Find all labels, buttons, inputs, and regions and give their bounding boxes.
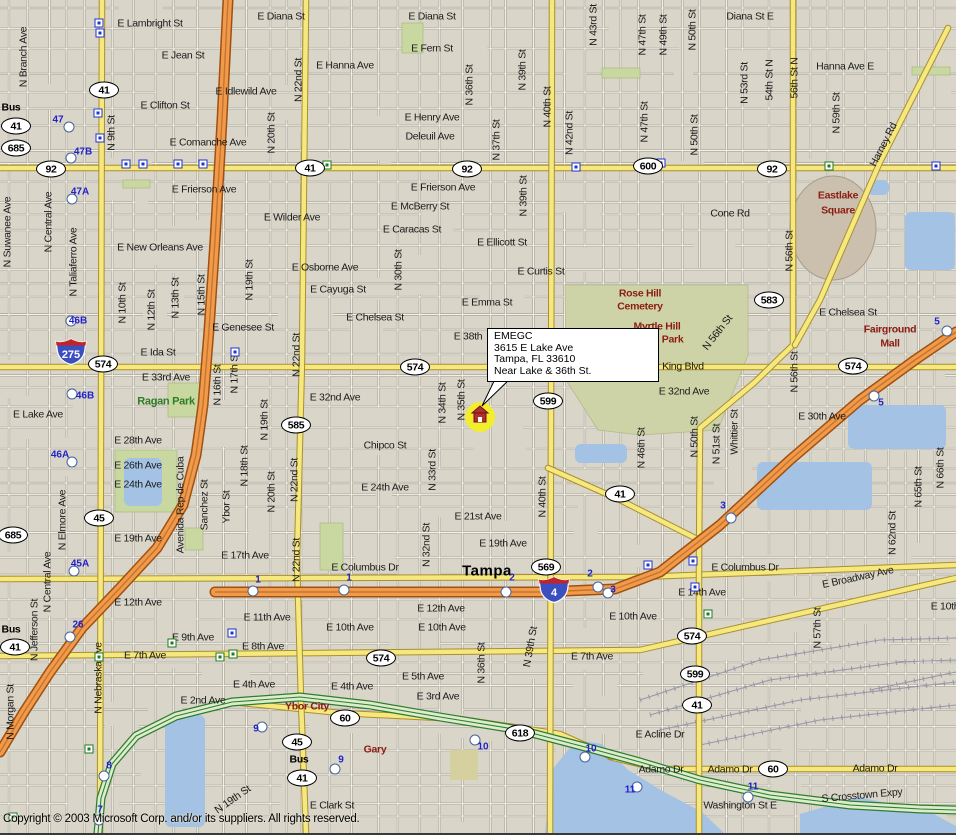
street-label: E 2nd Ave [181,696,226,707]
route-shield: 41 [682,697,712,714]
route-shield: 41 [605,486,635,503]
svg-text:4: 4 [551,587,558,599]
street-label: N 47th St [638,14,649,55]
street-label: 54th St N [765,59,776,100]
callout-title: EMEGC [494,331,652,343]
route-shield: 92 [757,161,787,178]
interchange-dot [65,632,76,643]
poi-square-blue-icon [644,561,653,570]
exit-number: 26 [72,620,83,631]
street-label: E 38th [454,332,483,343]
location-callout: EMEGC 3615 E Lake Ave Tampa, FL 33610 Ne… [487,328,659,382]
street-label: N 47th St [640,101,651,142]
exit-number: 1 [255,575,261,586]
route-shield: 45 [282,734,312,751]
place-label: Square [821,206,855,217]
route-shield: 569 [531,559,561,576]
street-label: E Idlewild Ave [216,87,277,98]
street-label: E 4th Ave [331,682,373,693]
poi-square-blue-icon [96,134,105,143]
exit-number: 46B [69,316,87,327]
street-label: E 19th Ave [479,539,527,550]
street-label: E Frierson Ave [411,183,475,194]
street-label: N 57th St [813,607,824,648]
place-label: Gary [364,745,387,756]
route-shield: 574 [677,628,707,645]
street-label: N 18th St [240,445,251,486]
street-label: N 40th St [543,86,554,127]
poi-square-blue-icon [231,348,240,357]
street-label: E Fern St [411,44,453,55]
exit-number: 47 [52,115,63,126]
poi-square-blue-icon [96,29,105,38]
poi-square-green-icon [704,610,713,619]
street-label: E Cayuga St [310,285,366,296]
route-shield: 41 [295,160,325,177]
street-label: Ybor St [222,491,233,524]
exit-number: 47A [71,187,89,198]
street-label: Washington St E [703,801,776,812]
callout-city: Tampa, FL 33610 [494,354,652,366]
street-label: Deleuil Ave [405,132,454,143]
street-label: N Elmore Ave [58,490,69,550]
street-label: Cone Rd [710,209,749,220]
street-label: N 34th St [438,382,449,423]
place-label: Fairground [864,325,916,336]
street-label: E Comanche Ave [170,138,247,149]
poi-square-green-icon [95,653,104,662]
place-label: Mall [880,339,899,350]
street-label: Adamo Dr [853,764,898,775]
exit-number: 2 [509,573,515,584]
street-label: E Acline Dr [636,730,685,741]
street-label: E 24th Ave [114,480,162,491]
route-shield: 41 [0,639,30,656]
exit-number: 1 [346,573,352,584]
place-label: Rose Hill [619,289,661,300]
exit-number: 45A [71,559,89,570]
route-shield: 92 [36,161,66,178]
poi-square-green-icon [825,162,834,171]
street-label: E 24th Ave [361,483,409,494]
street-label: E Clark St [310,801,354,812]
street-label: N 13th St [171,277,182,318]
exit-number: 46A [51,450,69,461]
street-label: E 7th Ave [571,652,613,663]
street-label: Hanna Ave E [816,62,874,73]
street-label: N 20th St [267,471,278,512]
street-label: N 66th St [936,447,947,488]
street-label: E 26th Ave [114,461,162,472]
street-label: N 22nd St [294,58,305,102]
street-label: N 16th St [213,364,224,405]
street-label: N 49th St [659,14,670,55]
interchange-dot [99,771,110,782]
bus-route-label: Bus [2,625,21,636]
street-label: N Central Ave [43,552,54,613]
route-shield: 41 [287,770,317,787]
street-label: N 65th St [914,466,925,507]
street-label: E Columbus Dr [331,563,398,574]
street-label: E 30th Ave [798,412,846,423]
interchange-dot [339,585,350,596]
street-label: E Emma St [462,298,512,309]
route-shield: 685 [1,140,31,157]
copyright-text: Copyright © 2003 Microsoft Corp. and/or … [3,813,360,825]
exit-number: 9 [253,724,259,735]
street-label: E Jean St [162,51,205,62]
street-label: N 56th St [785,230,796,271]
route-shield: 599 [680,666,710,683]
street-label: N 32nd St [422,523,433,567]
street-label: N 10th St [118,282,129,323]
street-label: N 46th St [637,427,648,468]
poi-square-green-icon [85,745,94,754]
street-label: N 50th St [688,9,699,50]
exit-number: 9 [338,755,344,766]
exit-number: 47B [74,147,92,158]
poi-square-blue-icon [95,19,104,28]
route-shield: 600 [633,158,663,175]
poi-square-green-icon [216,653,225,662]
street-label: N 39th St [519,175,530,216]
street-label: Avenida Rep de Cuba [176,457,187,554]
route-shield: 574 [88,356,118,373]
street-label: E Frierson Ave [172,185,236,196]
city-label: Tampa [462,566,512,577]
street-label: E Caracas St [383,225,441,236]
poi-square-blue-icon [691,583,700,592]
street-label: N Branch Ave [19,27,30,87]
bus-route-label: Bus [2,103,21,114]
place-label: Eastlake [818,191,858,202]
street-label: 56th St N [790,57,801,98]
exit-number: 5 [878,398,884,409]
exit-number: 10 [477,742,488,753]
street-label: N 36th St [477,642,488,683]
exit-number: 5 [934,317,940,328]
street-label: N 17th St [230,352,241,393]
street-label: N 22nd St [290,458,301,502]
exit-number: 3 [720,501,726,512]
interstate-shield: 275 [55,338,87,370]
park-label: Ragan Park [137,397,195,408]
street-label: E Clifton St [141,101,190,112]
street-label: Diana St E [726,12,773,23]
street-label: N Central Ave [44,192,55,253]
street-label: E 10th Ave [326,623,374,634]
street-label: N Suwanee Ave [3,197,14,268]
street-label: N Morgan St [6,684,17,740]
route-shield: 60 [758,761,788,778]
street-label: E 32nd Ave [659,387,710,398]
street-label: N 22nd St [292,333,303,377]
street-label: E Henry Ave [405,113,460,124]
route-shield: 585 [281,417,311,434]
poi-square-blue-icon [689,557,698,566]
poi-square-blue-icon [139,160,148,169]
street-label: E 32nd Ave [310,393,361,404]
street-label: N 50th St [690,416,701,457]
exit-number: 46B [76,391,94,402]
interchange-dot [64,122,75,133]
exit-number: 2 [587,569,593,580]
street-label: E Diana St [257,12,304,23]
poi-square-green-icon [168,639,177,648]
street-label: E Ida St [141,348,176,359]
poi-square-blue-icon [122,160,131,169]
exit-number: 3 [610,585,616,596]
route-shield: 45 [84,510,114,527]
map-viewport[interactable]: E Lambright StE Diana StE Diana StDiana … [0,0,956,835]
street-label: N 40th St [538,476,549,517]
street-label: E 3rd Ave [417,692,460,703]
street-label: E 21st Ave [454,512,501,523]
route-shield: 60 [330,710,360,727]
place-label: Cemetery [617,302,662,313]
exit-number: 11 [748,782,759,793]
street-label: E Lake Ave [13,410,63,421]
street-label: E Wilder Ave [264,213,320,224]
street-label: E Osborne Ave [292,263,359,274]
street-label: Chipco St [364,441,407,452]
street-label: Adamo Dr [639,765,684,776]
street-label: N 9th St [107,115,118,151]
poi-square-blue-icon [94,109,103,118]
street-label: Adamo Dr [708,765,753,776]
street-label: E 8th Ave [242,642,284,653]
street-label: N 42nd St [565,111,576,155]
interstate-shield: 4 [538,576,570,608]
poi-square-green-icon [229,650,238,659]
svg-text:275: 275 [62,349,80,361]
route-shield: 599 [533,393,563,410]
interchange-dot [743,792,754,803]
street-label: E 10th Ave [609,612,657,623]
street-label: E Columbus Dr [711,563,778,574]
poi-square-blue-icon [174,160,183,169]
bus-route-label: Bus [290,755,309,766]
street-label: N 59th St [832,92,843,133]
street-label: E 19th Ave [114,534,162,545]
street-label: N 36th St [465,64,476,105]
street-label: N 15th St [197,274,208,315]
street-label: E 5th Ave [402,672,444,683]
street-label: N 51st St [712,424,723,465]
street-label: N 19th St [260,399,271,440]
street-label: N 43rd St [589,4,600,46]
route-shield: 41 [89,82,119,99]
street-label: N 35th St [457,379,468,420]
street-label: E 11th Ave [244,613,291,624]
route-shield: 574 [366,650,396,667]
street-label: N 33rd St [428,449,439,491]
place-label: Ybor City [285,702,329,713]
interchange-dot [942,326,953,337]
street-label: E 7th Ave [124,651,166,662]
street-label: E New Orleans Ave [117,243,203,254]
interchange-dot [248,586,259,597]
street-label: N 53rd St [740,62,751,104]
poi-square-blue-icon [199,160,208,169]
street-label: N 30th St [394,249,405,290]
street-label: E 12th Ave [417,604,465,615]
street-label: E 9th Ave [172,633,214,644]
interchange-dot [501,587,512,598]
street-label: E 17th Ave [221,551,269,562]
street-label: E Curtis St [518,267,565,278]
route-shield: 583 [754,292,784,309]
exit-number: 11 [625,785,636,796]
street-label: N 19th St [245,259,256,300]
street-label: N 62nd St [888,511,899,555]
route-shield: 92 [452,161,482,178]
street-label: E 28th Ave [114,436,162,447]
route-shield: 41 [1,118,31,135]
street-label: N 20th St [267,112,278,153]
street-label: E 10th [931,602,956,613]
street-label: N Taliaferro Ave [69,228,80,297]
street-label: N 50th St [690,114,701,155]
street-label: r King Blvd [656,362,703,373]
exit-number: 8 [106,761,112,772]
exit-number: 10 [585,744,596,755]
street-label: E 10th Ave [418,623,466,634]
street-label: E Genesee St [212,323,274,334]
street-label: E Chelsea St [346,313,404,324]
street-label: E 12th Ave [114,598,162,609]
street-label: N 22nd St [292,538,303,582]
street-label: E 14th Ave [678,588,726,599]
street-label: N 39th St [518,49,529,90]
street-label: E Ellicott St [477,238,527,249]
route-shield: 618 [505,725,535,742]
street-label: N 12th St [147,289,158,330]
route-shield: 574 [400,359,430,376]
street-label: E Diana St [408,12,455,23]
street-label: E 4th Ave [233,680,275,691]
interchange-dot [726,513,737,524]
poi-square-blue-icon [932,162,941,171]
street-label: E Chelsea St [819,308,877,319]
street-label: N 37th St [492,119,503,160]
street-label: Sanchez St [200,480,211,531]
poi-square-blue-icon [572,163,581,172]
street-label: E 33rd Ave [142,373,190,384]
street-label: Whittier St [730,409,741,454]
street-label: N 56th St [790,351,801,392]
street-label: E McBerry St [391,202,449,213]
street-label: E Hanna Ave [316,61,374,72]
street-label: N Jefferson St [30,599,41,661]
poi-square-blue-icon [228,629,237,638]
street-label: E Lambright St [117,19,182,30]
callout-note: Near Lake & 36th St. [494,366,652,378]
route-shield: 574 [838,358,868,375]
